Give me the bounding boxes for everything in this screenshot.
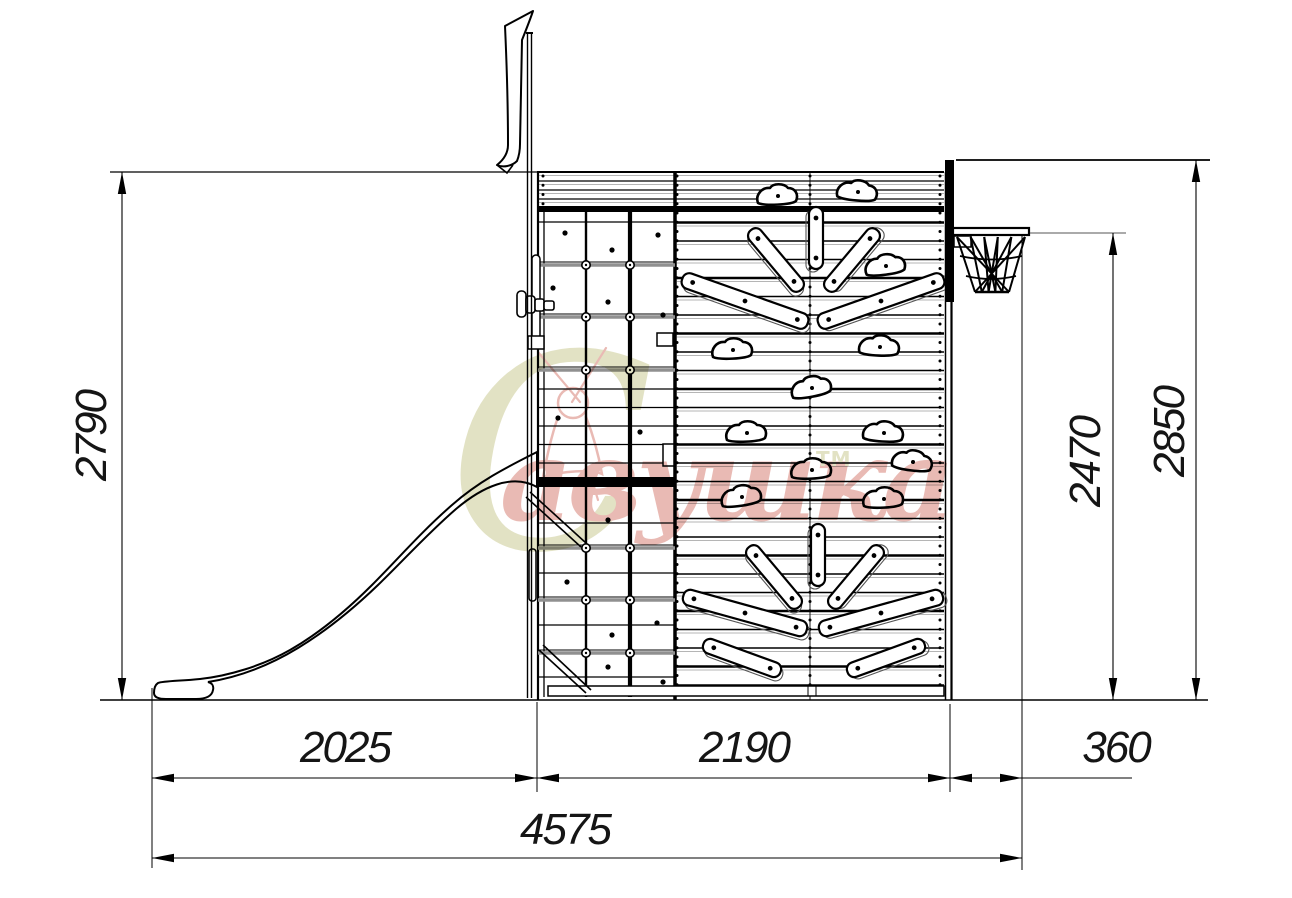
basketball-hoop xyxy=(945,160,1029,302)
dim-ring-height: 2470 xyxy=(1061,415,1110,508)
watermark-trademark: ТМ xyxy=(816,447,852,471)
dim-backboard-height: 2850 xyxy=(1145,385,1194,478)
watermark-text: авушка xyxy=(500,416,950,547)
dim-wall-span: 2190 xyxy=(698,723,791,772)
dim-overall-height: 2790 xyxy=(67,389,116,482)
dim-total-length: 4575 xyxy=(520,805,612,854)
dim-ring-offset: 360 xyxy=(1082,723,1152,772)
top-band xyxy=(537,206,944,212)
dim-slide-span: 2025 xyxy=(299,723,392,772)
rim xyxy=(953,228,1029,235)
playground-drawing: С авушка ТМ 2790 2470 2850 2025 2190 360 xyxy=(0,0,1292,898)
base-board xyxy=(548,686,944,696)
